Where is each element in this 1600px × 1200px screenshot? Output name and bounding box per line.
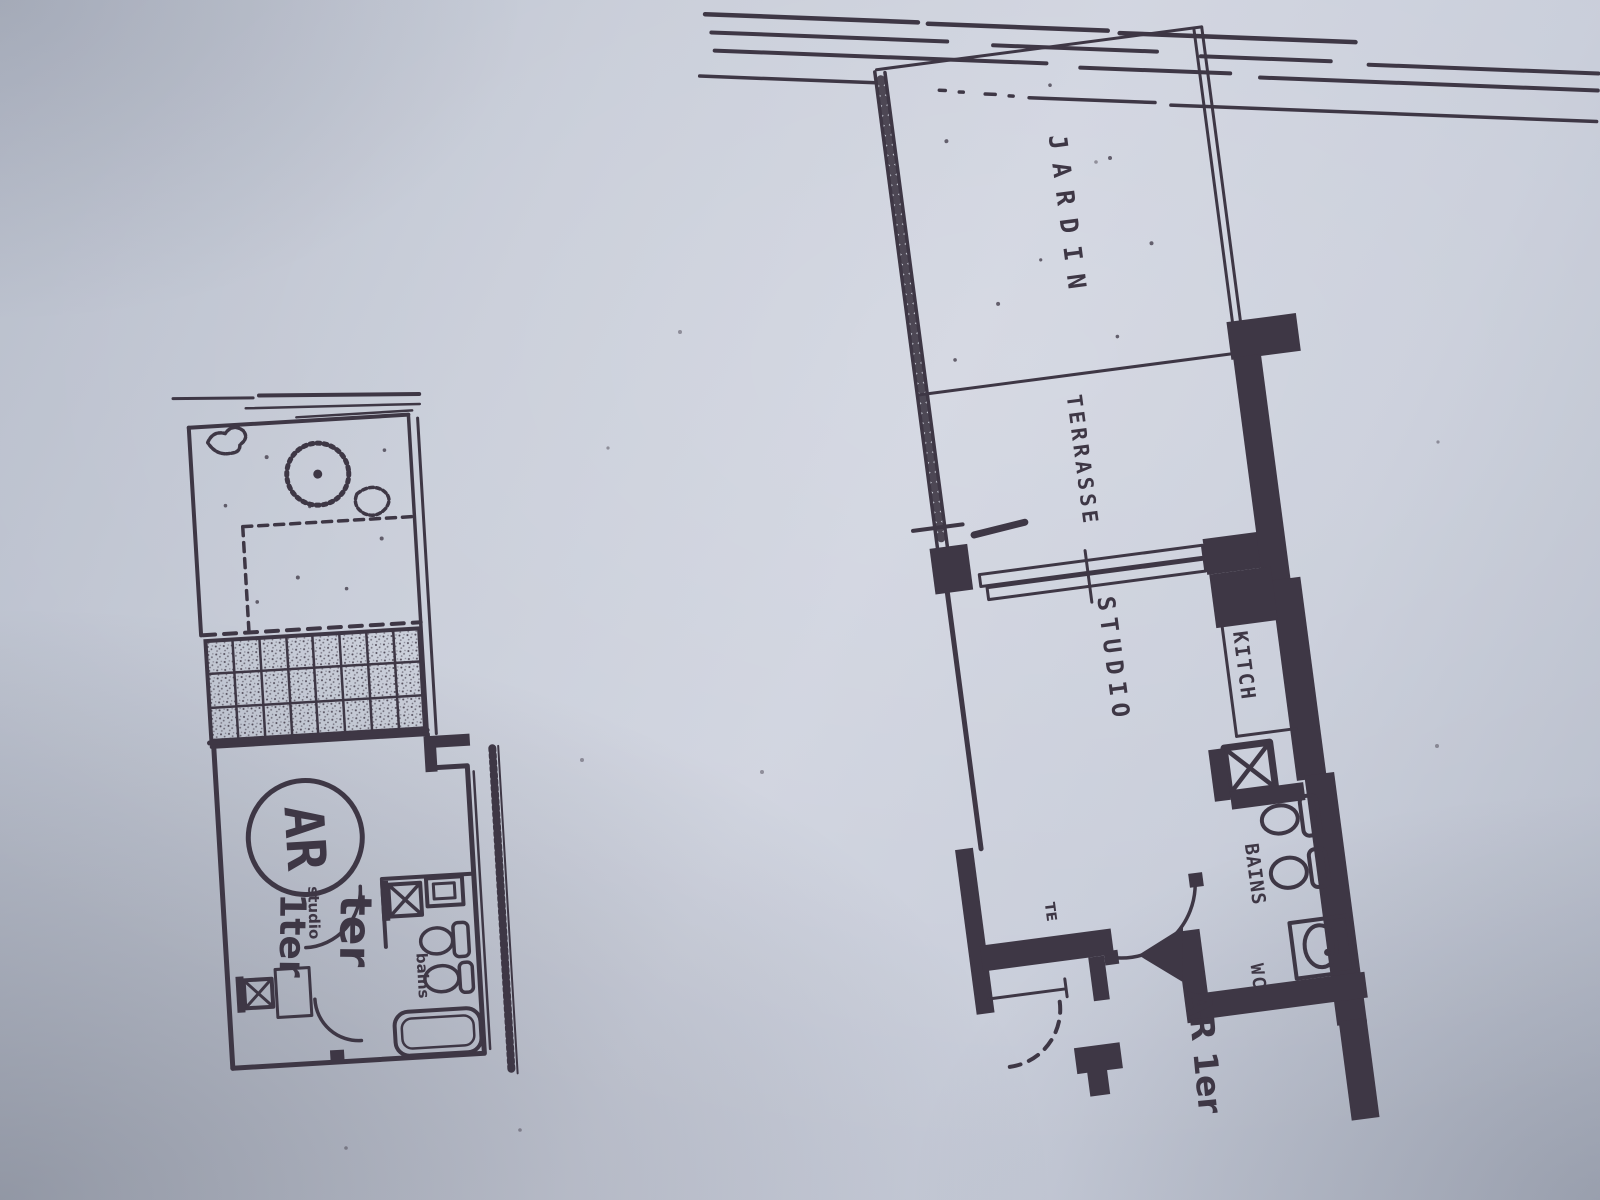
window-box bbox=[426, 876, 464, 906]
bathtub-icon bbox=[394, 1007, 482, 1056]
shower-icon bbox=[380, 879, 422, 921]
planting-bed-dashed bbox=[243, 517, 419, 631]
studio-area: STUDIO bbox=[947, 569, 1149, 849]
entry-pillar bbox=[1074, 1042, 1126, 1098]
small-floor-plan: AR ter studio 1ter bbox=[173, 381, 518, 1092]
road-line bbox=[711, 32, 1599, 73]
road-line bbox=[714, 51, 1598, 91]
jardin-area: JARDIN bbox=[877, 27, 1245, 395]
door-swing-arc-dashed bbox=[1002, 1002, 1067, 1067]
bains-label: BAINS bbox=[1240, 842, 1270, 907]
fence-boundary bbox=[853, 60, 1033, 596]
terrasse-label: TERRASSE bbox=[1062, 393, 1103, 528]
unit-badge-label: AR bbox=[271, 804, 338, 873]
road-line bbox=[705, 14, 1356, 42]
unit-badge: AR bbox=[245, 777, 366, 898]
wall-jog bbox=[330, 1050, 345, 1065]
floor-plan-drawing: JARDIN TERRASSE STUDIO bbox=[0, 0, 1600, 1200]
radiator-label: TE bbox=[1041, 901, 1059, 922]
shrub-icon bbox=[207, 427, 247, 455]
photographed-floor-plan-sheet: JARDIN TERRASSE STUDIO bbox=[0, 0, 1600, 1200]
ter-annotation: ter bbox=[329, 894, 381, 967]
unit-annotation: 1ter bbox=[271, 893, 313, 978]
jardin-terrasse-divider bbox=[919, 352, 1244, 395]
shower-icon bbox=[235, 975, 273, 1013]
print-specks bbox=[919, 73, 1165, 362]
studio-label: STUDIO bbox=[1091, 595, 1136, 726]
shrub-icon bbox=[355, 486, 390, 516]
door-swing-arc bbox=[315, 997, 362, 1044]
paving-tiles bbox=[203, 628, 427, 743]
tree-icon bbox=[285, 441, 351, 507]
road-line bbox=[699, 76, 1597, 121]
bains-annotation: bains bbox=[412, 952, 433, 999]
entrance-triangle-icon bbox=[1135, 927, 1190, 987]
kitchen-label: KITCH bbox=[1228, 630, 1261, 703]
lot-boundary-hatched bbox=[492, 746, 517, 1074]
studio-block: AR ter studio 1ter bbox=[212, 731, 491, 1070]
stove-icon bbox=[1224, 742, 1276, 794]
jardin-label: JARDIN bbox=[1043, 133, 1094, 304]
large-floor-plan: JARDIN TERRASSE STUDIO bbox=[853, 20, 1402, 1168]
door-hinge bbox=[1188, 872, 1204, 888]
wall-tail bbox=[1339, 1018, 1380, 1121]
road-boundary-lines bbox=[699, 14, 1599, 121]
